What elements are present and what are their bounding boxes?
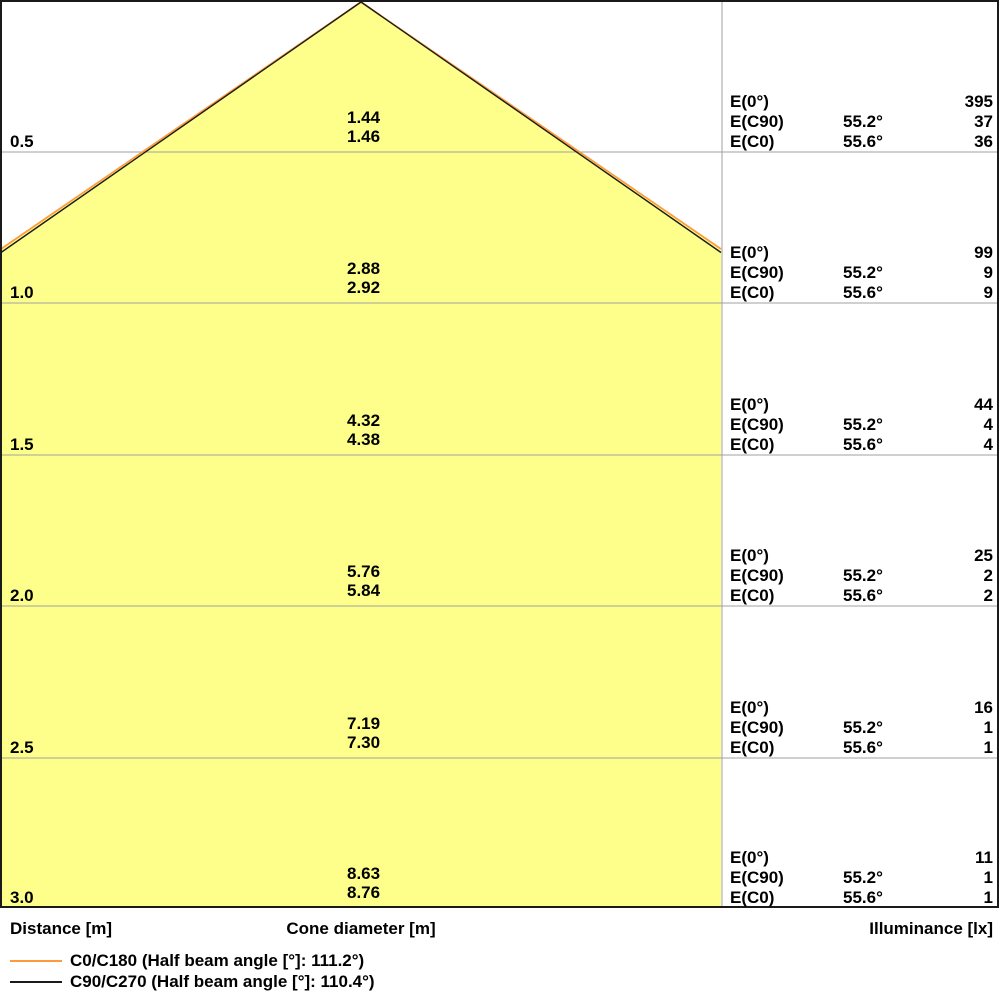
- e0-label: E(0°): [730, 546, 769, 566]
- ec0-label: E(C0): [730, 283, 774, 303]
- ec0-row: E(C0) 55.6° 4: [730, 435, 993, 455]
- ec0-angle: 55.6°: [843, 132, 883, 152]
- e0-label: E(0°): [730, 92, 769, 112]
- ec90-value: 1: [984, 718, 993, 738]
- ec90-angle: 55.2°: [843, 566, 883, 586]
- ec0-value: 36: [974, 132, 993, 152]
- light-cone-diagram: 0.5 1.44 1.46 E(0°) 395 E(C90) 55.2° 37 …: [0, 0, 1000, 1000]
- cone-diameter-c0: 8.76: [347, 883, 380, 902]
- distance-label: 1.5: [10, 434, 34, 455]
- cone-diameter-values: 4.32 4.38: [347, 411, 380, 449]
- ec0-value: 4: [984, 435, 993, 455]
- ec90-row: E(C90) 55.2° 2: [730, 566, 993, 586]
- ec90-row: E(C90) 55.2° 1: [730, 718, 993, 738]
- ec0-row: E(C0) 55.6° 1: [730, 888, 993, 908]
- e0-row: E(0°) 25: [730, 546, 993, 566]
- cone-diameter-c0: 1.46: [347, 127, 380, 146]
- e0-value: 11: [975, 848, 993, 868]
- cone-diameter-c90: 7.19: [347, 714, 380, 733]
- e0-value: 44: [974, 395, 993, 415]
- cone-diameter-c0: 2.92: [347, 278, 380, 297]
- cone-diameter-c90: 2.88: [347, 259, 380, 278]
- illuminance-block: E(0°) 25 E(C90) 55.2° 2 E(C0) 55.6° 2: [730, 546, 993, 606]
- ec90-label: E(C90): [730, 566, 784, 586]
- e0-row: E(0°) 11: [730, 848, 993, 868]
- ec0-angle: 55.6°: [843, 283, 883, 303]
- e0-row: E(0°) 395: [730, 92, 993, 112]
- e0-value: 99: [974, 243, 993, 263]
- e0-row: E(0°) 44: [730, 395, 993, 415]
- cone-diameter-c0: 7.30: [347, 733, 380, 752]
- ec0-value: 9: [984, 283, 993, 303]
- cone-diameter-values: 2.88 2.92: [347, 259, 380, 297]
- e0-label: E(0°): [730, 698, 769, 718]
- ec0-angle: 55.6°: [843, 738, 883, 758]
- cone-diameter-values: 7.19 7.30: [347, 714, 380, 752]
- cone-diameter-c90: 4.32: [347, 411, 380, 430]
- ec90-value: 4: [984, 415, 993, 435]
- e0-value: 395: [965, 92, 993, 112]
- distance-label: 1.0: [10, 282, 34, 303]
- ec90-row: E(C90) 55.2° 1: [730, 868, 993, 888]
- ec0-label: E(C0): [730, 132, 774, 152]
- e0-row: E(0°) 16: [730, 698, 993, 718]
- e0-row: E(0°) 99: [730, 243, 993, 263]
- cone-diameter-c0: 4.38: [347, 430, 380, 449]
- ec90-label: E(C90): [730, 112, 784, 132]
- ec0-row: E(C0) 55.6° 2: [730, 586, 993, 606]
- c0-line-swatch: [10, 960, 62, 962]
- e0-label: E(0°): [730, 395, 769, 415]
- ec90-label: E(C90): [730, 868, 784, 888]
- cone-diameter-axis-label: Cone diameter [m]: [286, 919, 435, 938]
- cone-diameter-c90: 8.63: [347, 864, 380, 883]
- ec90-row: E(C90) 55.2° 9: [730, 263, 993, 283]
- ec90-angle: 55.2°: [843, 263, 883, 283]
- e0-value: 25: [974, 546, 993, 566]
- ec90-angle: 55.2°: [843, 112, 883, 132]
- ec0-angle: 55.6°: [843, 888, 883, 908]
- ec0-label: E(C0): [730, 435, 774, 455]
- illuminance-axis-label: Illuminance [lx]: [869, 919, 993, 938]
- illuminance-block: E(0°) 395 E(C90) 55.2° 37 E(C0) 55.6° 36: [730, 92, 993, 152]
- cone-diameter-c90: 5.76: [347, 562, 380, 581]
- ec90-label: E(C90): [730, 718, 784, 738]
- ec0-value: 2: [984, 586, 993, 606]
- cone-diameter-values: 5.76 5.84: [347, 562, 380, 600]
- ec90-label: E(C90): [730, 415, 784, 435]
- ec0-value: 1: [984, 738, 993, 758]
- distance-label: 2.0: [10, 585, 34, 606]
- ec0-row: E(C0) 55.6° 1: [730, 738, 993, 758]
- illuminance-block: E(0°) 44 E(C90) 55.2° 4 E(C0) 55.6° 4: [730, 395, 993, 455]
- c90-line-swatch: [10, 981, 62, 983]
- ec90-value: 1: [984, 868, 993, 888]
- e0-label: E(0°): [730, 243, 769, 263]
- ec90-angle: 55.2°: [843, 718, 883, 738]
- legend-label-c0: C0/C180 (Half beam angle [°]: 111.2°): [70, 951, 364, 970]
- ec0-value: 1: [984, 888, 993, 908]
- distance-label: 3.0: [10, 887, 34, 908]
- e0-label: E(0°): [730, 848, 769, 868]
- ec0-label: E(C0): [730, 888, 774, 908]
- ec0-label: E(C0): [730, 586, 774, 606]
- ec90-value: 2: [984, 566, 993, 586]
- ec90-row: E(C90) 55.2° 37: [730, 112, 993, 132]
- ec90-value: 37: [974, 112, 993, 132]
- cone-diameter-c90: 1.44: [347, 108, 380, 127]
- legend-row-c0-c180: C0/C180 (Half beam angle [°]: 111.2°): [0, 951, 1000, 970]
- ec90-angle: 55.2°: [843, 868, 883, 888]
- cone-diameter-values: 8.63 8.76: [347, 864, 380, 902]
- ec90-value: 9: [984, 263, 993, 283]
- ec90-row: E(C90) 55.2° 4: [730, 415, 993, 435]
- ec90-angle: 55.2°: [843, 415, 883, 435]
- ec0-angle: 55.6°: [843, 586, 883, 606]
- ec0-row: E(C0) 55.6° 9: [730, 283, 993, 303]
- ec0-label: E(C0): [730, 738, 774, 758]
- illuminance-block: E(0°) 16 E(C90) 55.2° 1 E(C0) 55.6° 1: [730, 698, 993, 758]
- illuminance-block: E(0°) 11 E(C90) 55.2° 1 E(C0) 55.6° 1: [730, 848, 993, 908]
- distance-label: 0.5: [10, 131, 34, 152]
- legend-label-c90: C90/C270 (Half beam angle [°]: 110.4°): [70, 972, 375, 991]
- cone-diameter-values: 1.44 1.46: [347, 108, 380, 146]
- illuminance-block: E(0°) 99 E(C90) 55.2° 9 E(C0) 55.6° 9: [730, 243, 993, 303]
- ec90-label: E(C90): [730, 263, 784, 283]
- distance-label: 2.5: [10, 737, 34, 758]
- ec0-row: E(C0) 55.6° 36: [730, 132, 993, 152]
- distance-axis-label: Distance [m]: [10, 919, 112, 938]
- e0-value: 16: [974, 698, 993, 718]
- ec0-angle: 55.6°: [843, 435, 883, 455]
- legend-row-c90-c270: C90/C270 (Half beam angle [°]: 110.4°): [0, 972, 1000, 991]
- cone-diameter-c0: 5.84: [347, 581, 380, 600]
